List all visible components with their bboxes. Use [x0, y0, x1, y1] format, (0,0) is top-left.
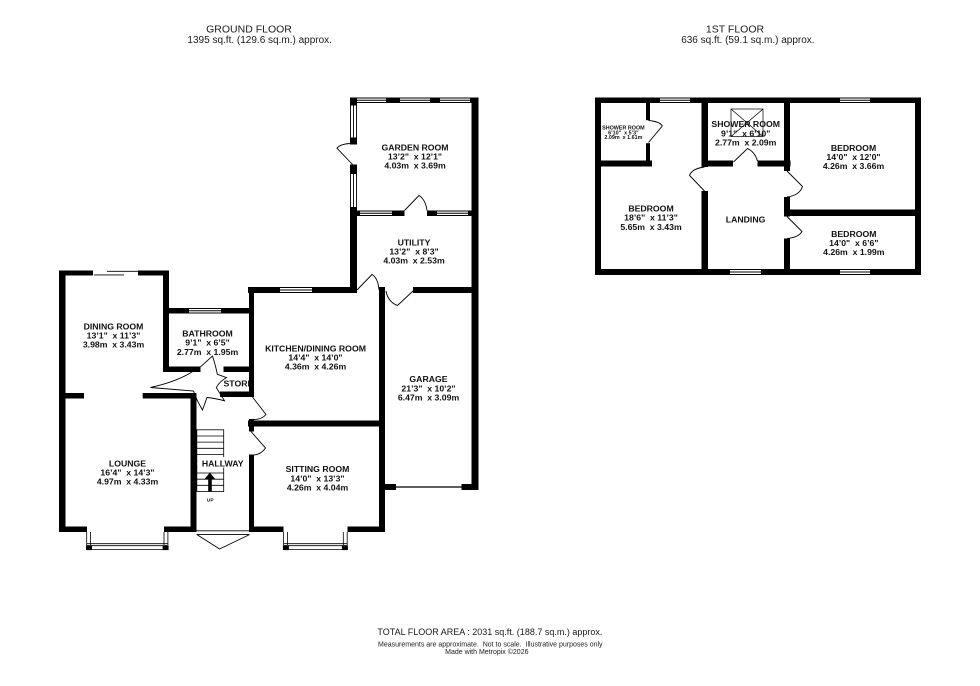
- svg-text:4.26m x 4.04m: 4.26m x 4.04m: [287, 482, 349, 492]
- svg-text:Made with Metropix ©2026: Made with Metropix ©2026: [445, 648, 528, 656]
- svg-text:2.77m x 2.09m: 2.77m x 2.09m: [715, 137, 777, 147]
- svg-text:3.98m x 3.43m: 3.98m x 3.43m: [83, 340, 145, 350]
- svg-text:4.03m x 3.69m: 4.03m x 3.69m: [384, 161, 446, 171]
- svg-text:2.09m x 1.61m: 2.09m x 1.61m: [604, 135, 642, 141]
- svg-text:GROUND FLOOR: GROUND FLOOR: [206, 24, 292, 36]
- svg-text:TOTAL FLOOR AREA : 2031 sq.ft.: TOTAL FLOOR AREA : 2031 sq.ft. (188.7 sq…: [377, 627, 602, 637]
- svg-text:UP: UP: [207, 498, 214, 504]
- svg-text:5.65m x 3.43m: 5.65m x 3.43m: [620, 222, 682, 232]
- svg-text:4.03m x 2.53m: 4.03m x 2.53m: [383, 256, 445, 266]
- svg-text:1ST FLOOR: 1ST FLOOR: [706, 24, 765, 36]
- svg-text:4.26m x 3.66m: 4.26m x 3.66m: [823, 161, 885, 171]
- svg-text:4.97m x 4.33m: 4.97m x 4.33m: [97, 477, 159, 487]
- svg-text:HALLWAY: HALLWAY: [202, 458, 244, 468]
- svg-text:6.47m x 3.09m: 6.47m x 3.09m: [398, 392, 460, 402]
- svg-text:LANDING: LANDING: [726, 215, 766, 225]
- svg-text:636 sq.ft. (59.1 sq.m.) approx: 636 sq.ft. (59.1 sq.m.) approx.: [681, 35, 814, 46]
- svg-text:1395 sq.ft. (129.6 sq.m.) appr: 1395 sq.ft. (129.6 sq.m.) approx.: [187, 35, 332, 46]
- svg-text:4.26m x 1.99m: 4.26m x 1.99m: [823, 247, 885, 257]
- svg-text:4.36m x 4.26m: 4.36m x 4.26m: [285, 362, 347, 372]
- svg-text:2.77m x 1.95m: 2.77m x 1.95m: [177, 347, 239, 357]
- svg-text:Measurements are approximate.: Measurements are approximate. Not to sca…: [378, 641, 603, 648]
- svg-text:STORE: STORE: [224, 379, 254, 389]
